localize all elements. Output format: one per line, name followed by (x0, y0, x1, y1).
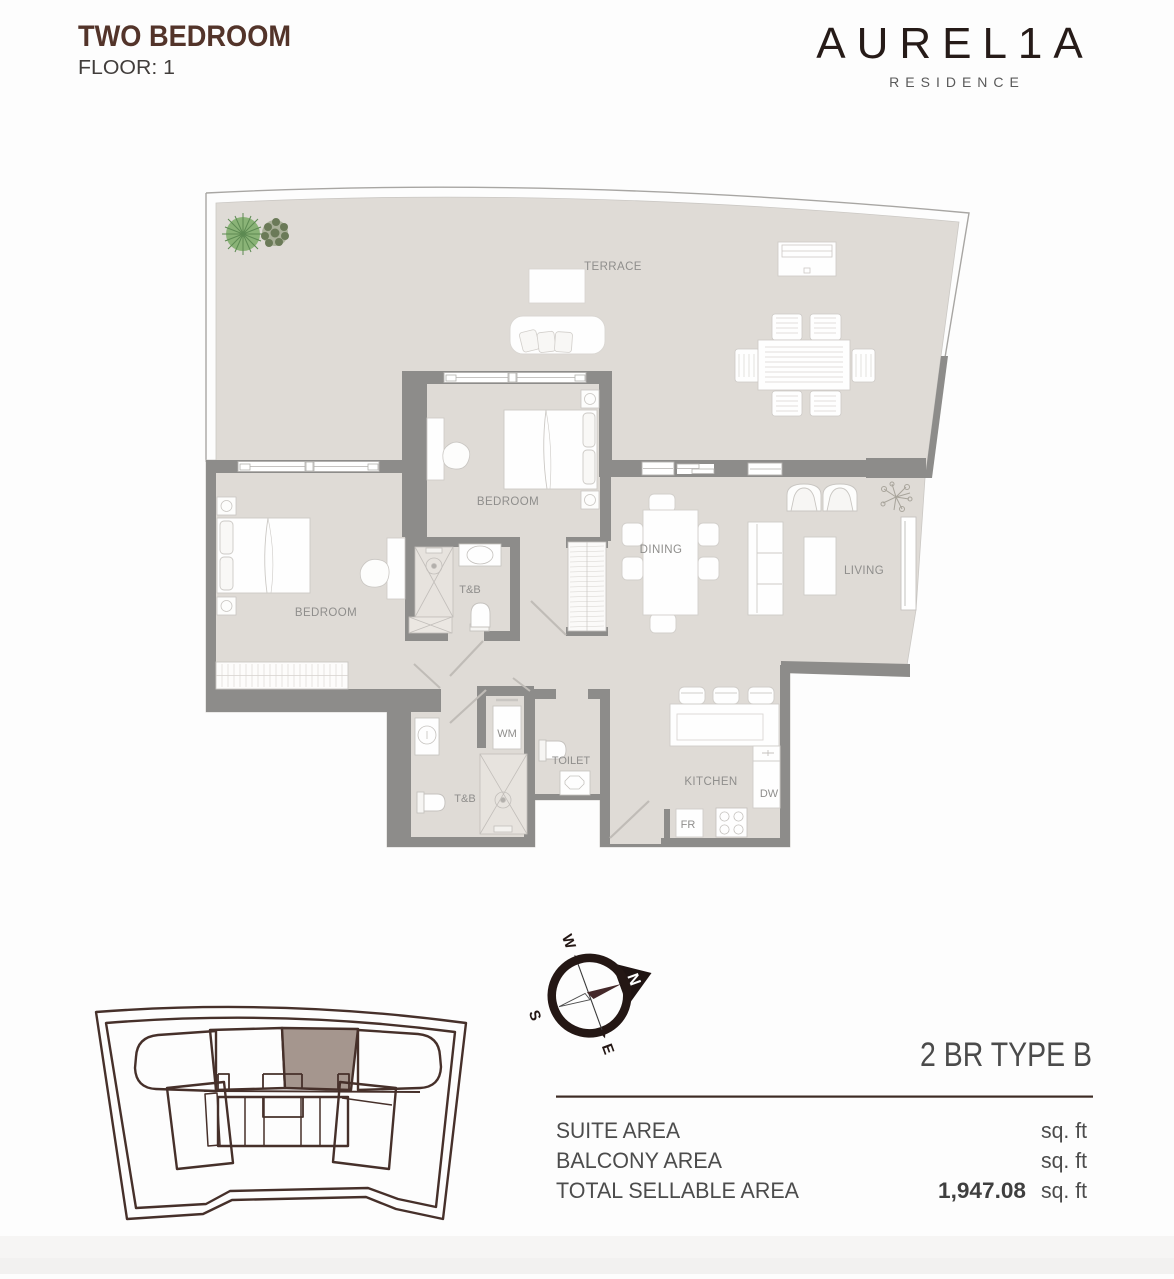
svg-text:1,947.08: 1,947.08 (938, 1178, 1026, 1203)
svg-text:FLOOR: 1: FLOOR: 1 (78, 57, 175, 79)
svg-text:BALCONY AREA: BALCONY AREA (556, 1148, 722, 1173)
svg-text:BEDROOM: BEDROOM (477, 496, 539, 508)
svg-text:BEDROOM: BEDROOM (295, 607, 357, 619)
svg-text:DW: DW (760, 788, 779, 800)
svg-text:sq. ft: sq. ft (1041, 1118, 1088, 1143)
svg-text:sq. ft: sq. ft (1041, 1178, 1088, 1203)
svg-text:DINING: DINING (640, 544, 683, 556)
svg-text:T&B: T&B (454, 793, 475, 805)
svg-text:RESIDENCE: RESIDENCE (889, 74, 1025, 90)
svg-text:KITCHEN: KITCHEN (684, 776, 737, 788)
svg-text:AUREL1A: AUREL1A (816, 19, 1094, 68)
svg-text:sq. ft: sq. ft (1041, 1148, 1088, 1173)
svg-text:TWO BEDROOM: TWO BEDROOM (78, 20, 291, 53)
svg-text:2 BR TYPE B: 2 BR TYPE B (920, 1036, 1092, 1074)
svg-text:SUITE AREA: SUITE AREA (556, 1118, 680, 1143)
svg-text:FR: FR (681, 819, 696, 831)
svg-text:TOTAL SELLABLE AREA: TOTAL SELLABLE AREA (556, 1178, 799, 1203)
svg-text:WM: WM (497, 728, 517, 740)
svg-text:LIVING: LIVING (844, 565, 884, 577)
svg-text:TOILET: TOILET (552, 755, 591, 767)
svg-text:T&B: T&B (459, 584, 480, 596)
svg-text:TERRACE: TERRACE (584, 261, 642, 273)
